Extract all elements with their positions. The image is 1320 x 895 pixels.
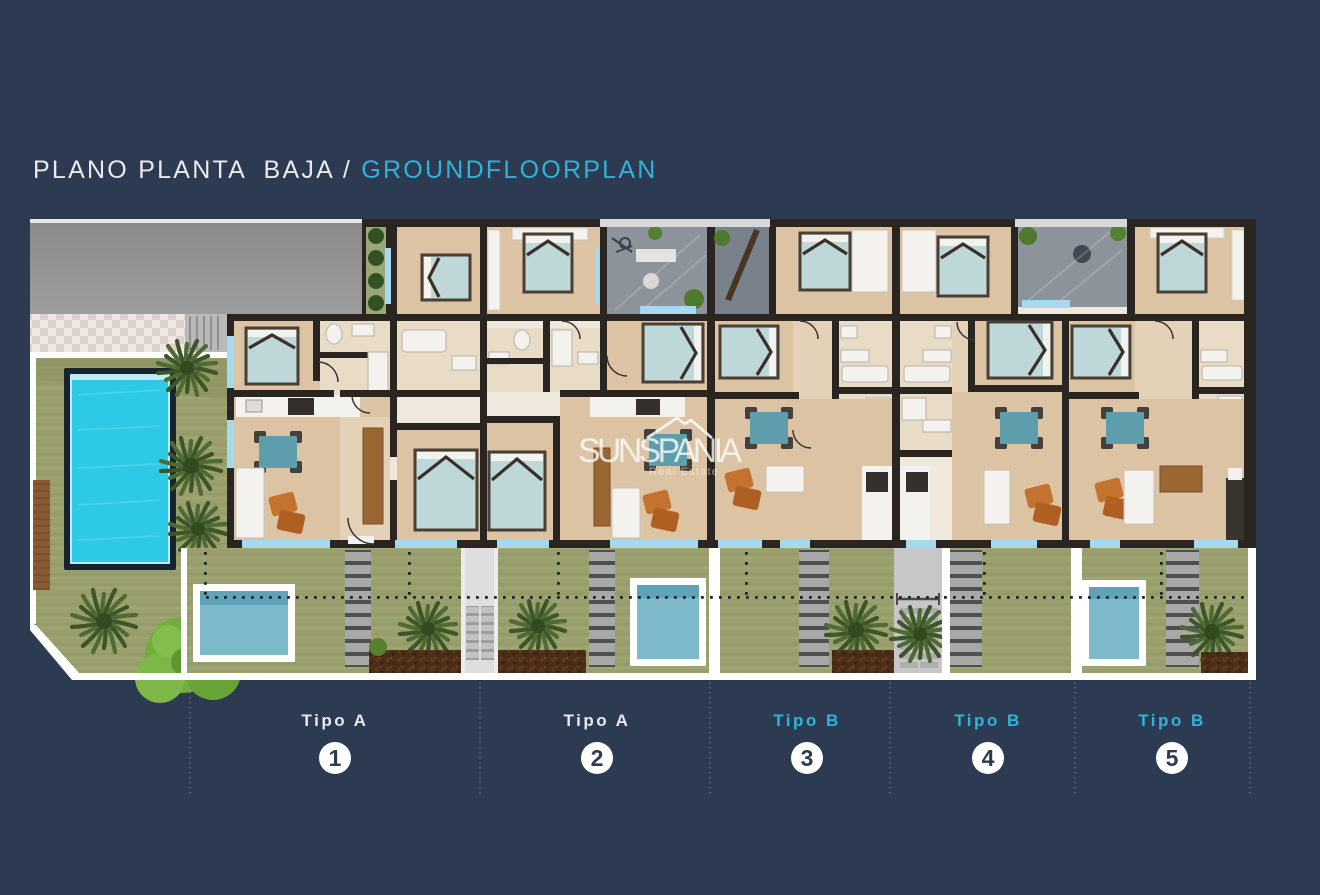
svg-text:Tipo A: Tipo A [302, 711, 369, 730]
svg-text:Tipo B: Tipo B [954, 711, 1022, 730]
svg-text:1: 1 [329, 745, 342, 771]
svg-text:3: 3 [801, 745, 814, 771]
svg-text:Tipo B: Tipo B [773, 711, 841, 730]
svg-text:2: 2 [591, 745, 604, 771]
svg-text:4: 4 [982, 745, 995, 771]
svg-text:Tipo A: Tipo A [564, 711, 631, 730]
svg-text:5: 5 [1166, 745, 1179, 771]
svg-text:PLANO PLANTA BAJA / GROUNDFLO: PLANO PLANTA BAJA / GROUNDFLOORPLAN [33, 156, 658, 184]
svg-text:Tipo B: Tipo B [1138, 711, 1206, 730]
svg-text:Real Estate: Real Estate [649, 466, 719, 478]
svg-text:SUNSPANIA: SUNSPANIA [578, 432, 742, 470]
